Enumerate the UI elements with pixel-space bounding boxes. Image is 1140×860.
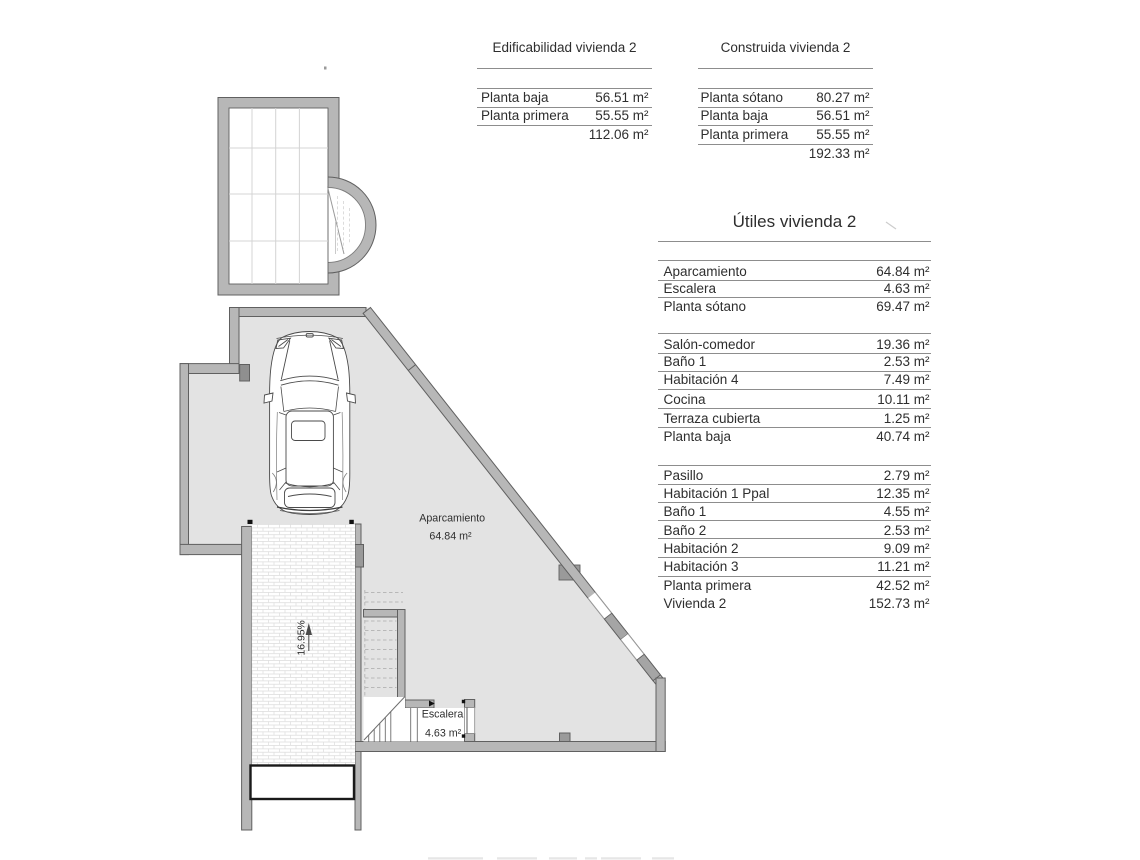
svg-text:16.95%: 16.95% — [297, 620, 308, 655]
svg-text:Aparcamiento: Aparcamiento — [419, 512, 485, 524]
svg-text:4.63 m²: 4.63 m² — [425, 728, 462, 740]
svg-text:64.84 m²: 64.84 m² — [429, 531, 472, 543]
svg-text:Escalera: Escalera — [422, 708, 464, 720]
